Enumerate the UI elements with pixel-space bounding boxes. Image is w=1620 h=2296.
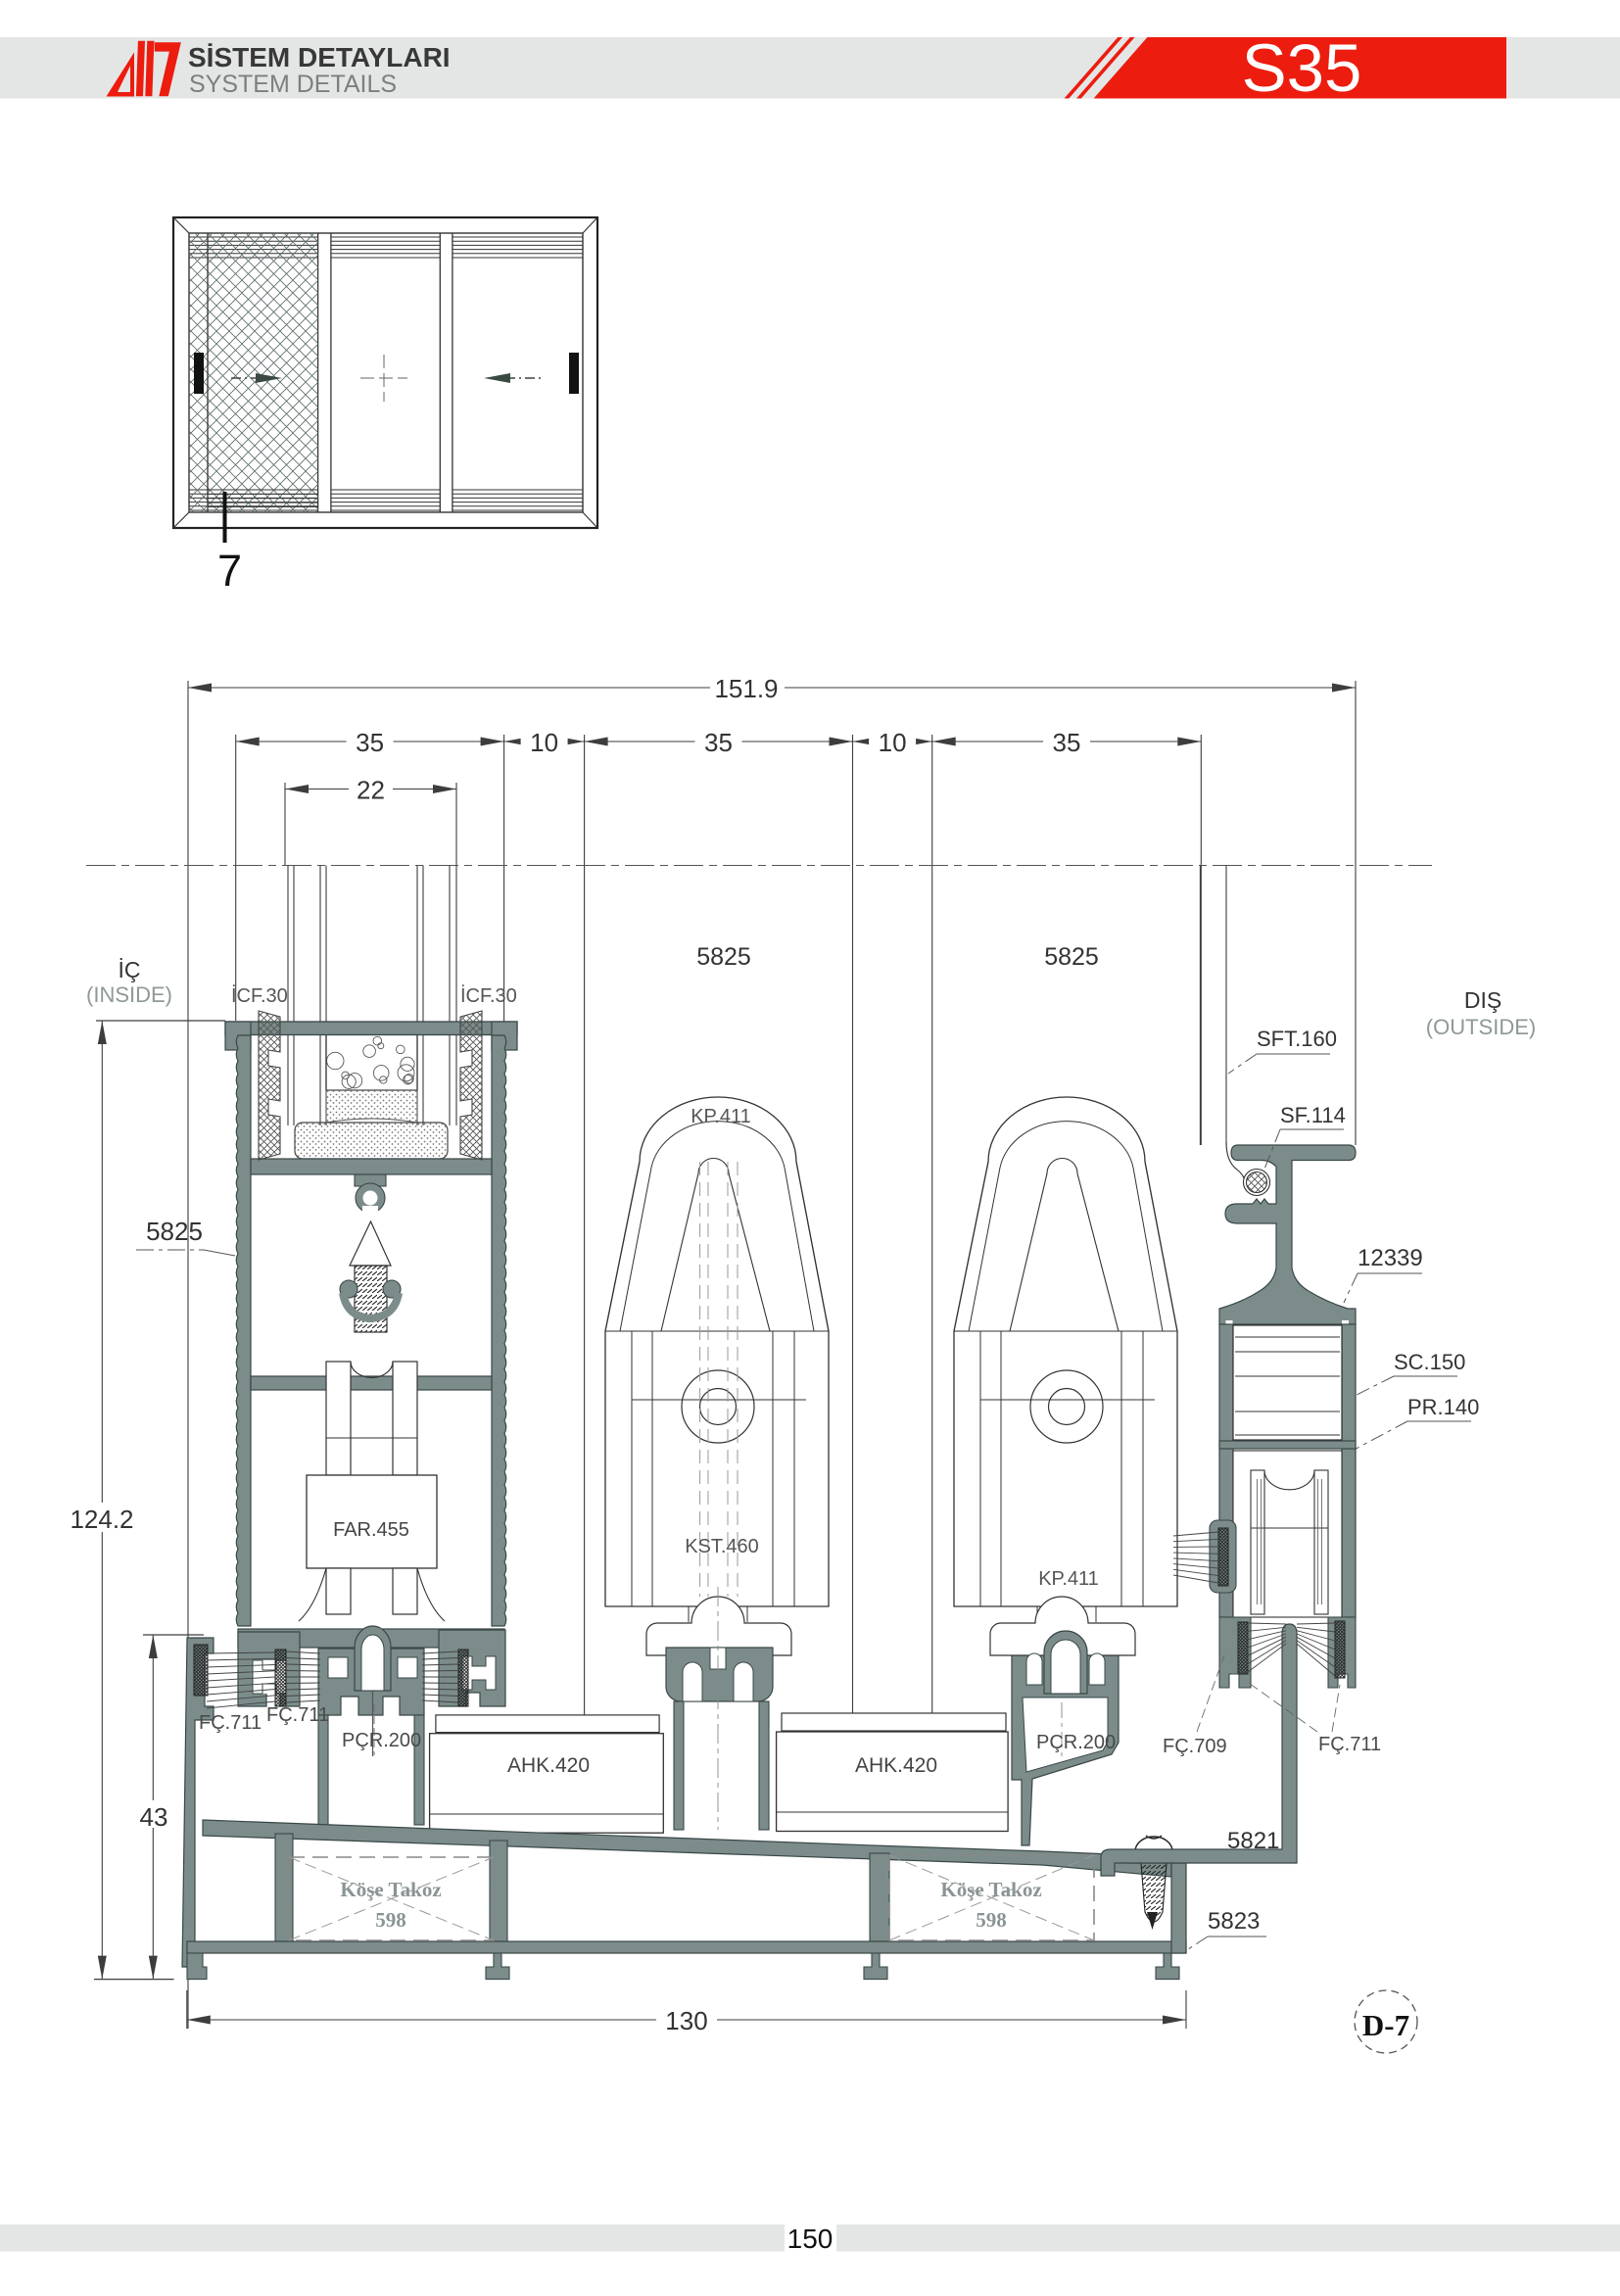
svg-text:PR.140: PR.140 (1407, 1395, 1479, 1419)
svg-text:130: 130 (665, 2006, 707, 2035)
svg-text:35: 35 (1053, 728, 1081, 757)
svg-text:5821: 5821 (1227, 1828, 1279, 1854)
svg-text:İCF.30: İCF.30 (460, 984, 517, 1007)
svg-text:KST.460: KST.460 (685, 1536, 759, 1557)
svg-text:Köşe Takoz: Köşe Takoz (940, 1878, 1041, 1901)
svg-text:FÇ.711: FÇ.711 (1318, 1734, 1381, 1755)
svg-text:5825: 5825 (146, 1217, 203, 1246)
svg-text:AHK.420: AHK.420 (507, 1754, 590, 1777)
svg-text:FAR.455: FAR.455 (333, 1519, 409, 1541)
svg-text:DIŞ: DIŞ (1464, 987, 1501, 1013)
svg-text:12339: 12339 (1358, 1245, 1423, 1271)
svg-text:SİSTEM DETAYLARI: SİSTEM DETAYLARI (188, 42, 451, 72)
svg-text:SYSTEM DETAILS: SYSTEM DETAILS (189, 71, 397, 98)
svg-text:KP.411: KP.411 (691, 1106, 751, 1127)
svg-text:SFT.160: SFT.160 (1257, 1027, 1337, 1051)
svg-text:(OUTSIDE): (OUTSIDE) (1426, 1015, 1536, 1039)
svg-text:150: 150 (787, 2224, 834, 2254)
svg-text:SC.150: SC.150 (1394, 1350, 1465, 1374)
svg-text:KP.411: KP.411 (1038, 1568, 1099, 1590)
svg-text:598: 598 (375, 1908, 406, 1932)
svg-text:İCF.30: İCF.30 (231, 984, 288, 1007)
svg-text:SF.114: SF.114 (1280, 1103, 1346, 1127)
svg-text:7: 7 (217, 546, 242, 596)
svg-text:5825: 5825 (696, 943, 751, 971)
svg-text:FÇ.709: FÇ.709 (1163, 1736, 1227, 1757)
svg-text:5823: 5823 (1208, 1908, 1260, 1935)
svg-text:FÇ.711: FÇ.711 (199, 1712, 262, 1734)
svg-text:43: 43 (140, 1802, 168, 1832)
svg-text:598: 598 (976, 1908, 1007, 1932)
svg-text:D-7: D-7 (1362, 2008, 1409, 2042)
svg-text:22: 22 (357, 776, 385, 805)
svg-text:10: 10 (530, 728, 558, 757)
svg-text:35: 35 (356, 728, 384, 757)
svg-text:AHK.420: AHK.420 (855, 1754, 937, 1777)
svg-text:Köşe Takoz: Köşe Takoz (340, 1878, 441, 1901)
svg-text:İÇ: İÇ (119, 957, 141, 982)
svg-text:5825: 5825 (1044, 943, 1099, 971)
svg-text:PÇR.200: PÇR.200 (342, 1730, 421, 1751)
svg-text:PÇR.200: PÇR.200 (1036, 1732, 1116, 1753)
svg-text:124.2: 124.2 (70, 1505, 133, 1534)
svg-text:35: 35 (704, 728, 733, 757)
svg-text:S35: S35 (1242, 30, 1362, 106)
svg-text:10: 10 (879, 728, 907, 757)
svg-text:FÇ.711: FÇ.711 (266, 1704, 329, 1726)
svg-text:151.9: 151.9 (714, 674, 778, 703)
svg-text:(INSIDE): (INSIDE) (86, 982, 172, 1007)
